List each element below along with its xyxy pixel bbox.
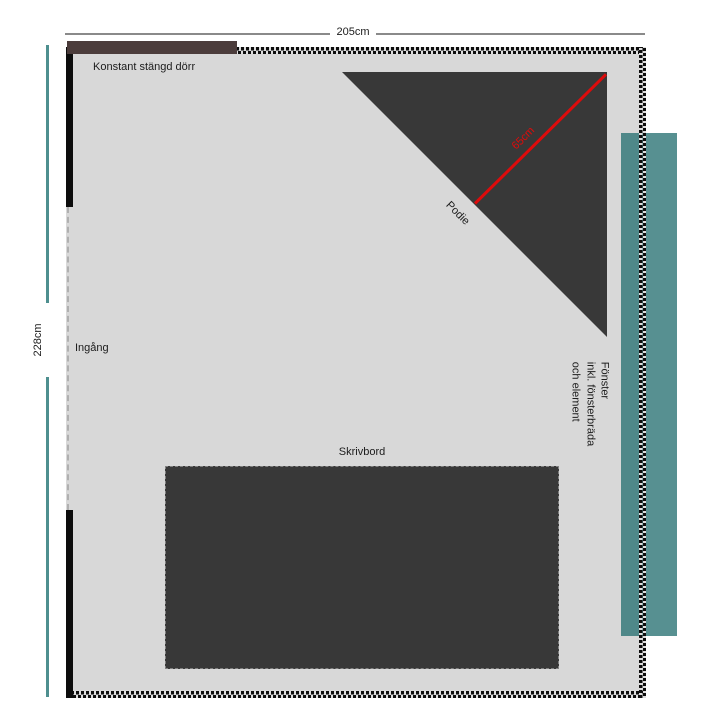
- entrance-label: Ingång: [75, 342, 109, 356]
- width-dimension-line-left: [65, 33, 330, 35]
- window-label-line3: och element: [569, 362, 583, 446]
- entrance-opening: [67, 207, 69, 510]
- door-rect: [67, 41, 237, 54]
- wall-left-upper: [66, 47, 73, 207]
- width-dimension-line-right: [376, 33, 645, 35]
- window-label-line2: inkl. fönsterbräda: [583, 362, 597, 446]
- height-dimension-label: 228cm: [32, 323, 46, 356]
- desk-label: Skrivbord: [339, 446, 385, 460]
- window-label-line1: Fönster: [597, 362, 611, 446]
- window-label: Fönster inkl. fönsterbräda och element: [569, 362, 612, 446]
- width-dimension-label: 205cm: [330, 26, 376, 40]
- wall-bottom: [66, 691, 646, 698]
- wall-right: [639, 47, 646, 698]
- wall-left-lower: [66, 510, 73, 698]
- desk-rect: [165, 466, 559, 669]
- height-dimension-line-upper: [46, 45, 49, 303]
- door-label: Konstant stängd dörr: [93, 61, 195, 75]
- height-dimension-line-lower: [46, 377, 49, 697]
- window-rect: [621, 133, 677, 636]
